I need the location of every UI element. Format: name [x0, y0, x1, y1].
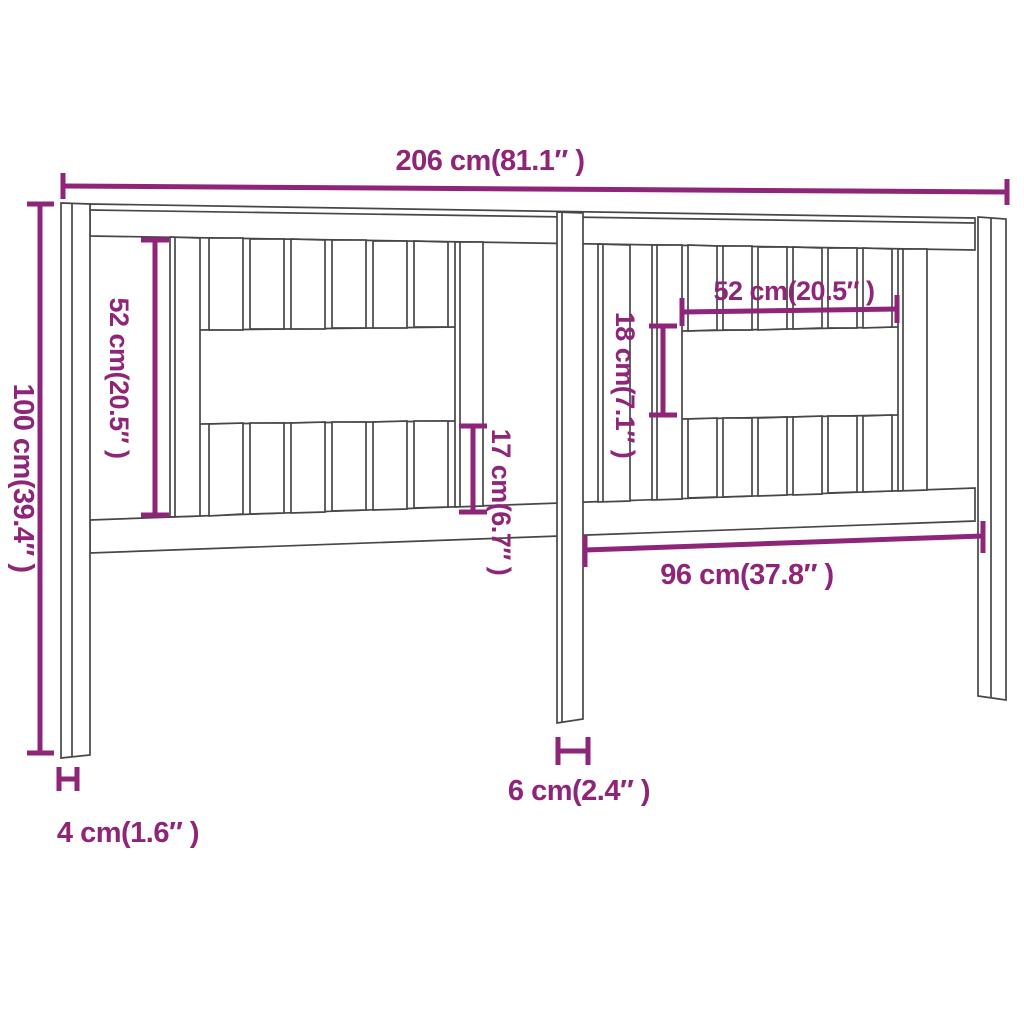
headboard-diagram: 206 cm(81.1″ ) 100 cm(39.4″ ) 52 cm(20.5…	[0, 0, 1024, 1024]
dim-left-slat-height: 52 cm(20.5″ )	[104, 240, 169, 515]
slat-short	[332, 422, 366, 511]
dim-overall-height: 100 cm(39.4″ )	[7, 204, 54, 753]
slat-short	[209, 238, 243, 330]
slat-short	[291, 422, 325, 513]
diagram-canvas: 206 cm(81.1″ ) 100 cm(39.4″ ) 52 cm(20.5…	[0, 0, 1024, 1024]
dim-side-post-width: 4 cm(1.6″ )	[57, 767, 199, 849]
slat-short	[758, 417, 787, 496]
slat-short	[414, 421, 448, 508]
slat-short	[250, 239, 284, 329]
right-post	[978, 217, 1006, 700]
dim-left-slat-height-label: 52 cm(20.5″ )	[104, 297, 134, 458]
dim-overall-width: 206 cm(81.1″ )	[63, 145, 1007, 205]
dim-line	[63, 186, 1007, 192]
dim-side-post-width-label: 4 cm(1.6″ )	[57, 817, 199, 849]
slat-short	[250, 423, 284, 514]
dim-lower-right-span-label: 96 cm(37.8″ )	[660, 559, 833, 591]
slat-short	[373, 241, 407, 328]
slat-short	[688, 418, 717, 498]
slat-short	[291, 239, 325, 329]
dim-center-leg-width-label: 6 cm(2.4″ )	[508, 775, 650, 807]
slat-short	[332, 240, 366, 328]
slat-short	[414, 241, 448, 327]
slat-short	[723, 418, 752, 497]
dim-lower-slat-height-label: 17 cm(6.7″ )	[486, 429, 516, 576]
dim-right-opening-height-label: 18 cm(7.1″ )	[610, 312, 640, 459]
slat-short	[793, 416, 822, 495]
dim-line	[585, 536, 983, 550]
dim-center-leg-width: 6 cm(2.4″ )	[508, 737, 650, 807]
dim-overall-height-label: 100 cm(39.4″ )	[7, 383, 39, 572]
slat-short	[373, 421, 407, 510]
dim-right-opening-width-label: 52 cm(20.5″ )	[713, 276, 874, 306]
center-leg	[557, 212, 583, 723]
dim-line	[682, 309, 897, 312]
slat-short	[863, 415, 892, 492]
slat-short	[828, 416, 857, 493]
dim-overall-width-label: 206 cm(81.1″ )	[395, 145, 584, 177]
slat-short	[209, 423, 243, 516]
left-post	[61, 203, 90, 758]
